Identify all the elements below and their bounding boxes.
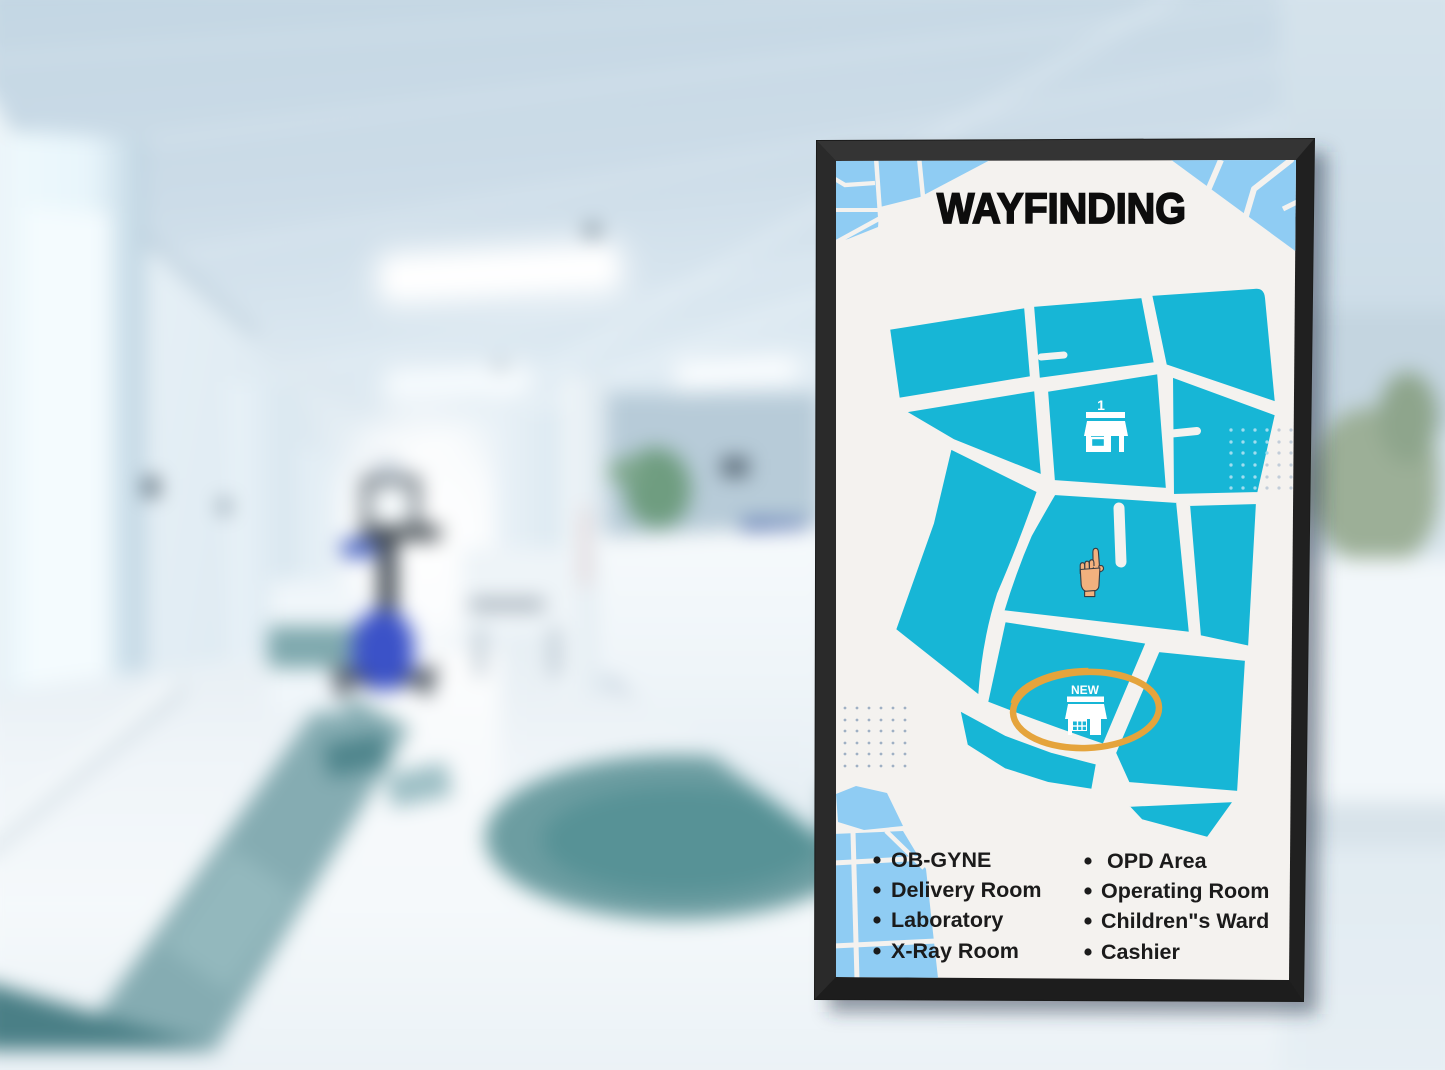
svg-text:Children"s Ward: Children"s Ward xyxy=(1101,909,1269,933)
svg-text:Cashier: Cashier xyxy=(1101,940,1181,964)
svg-text:X-Ray Room: X-Ray Room xyxy=(891,939,1019,963)
svg-text:Laboratory: Laboratory xyxy=(891,908,1003,932)
svg-text:OB-GYNE: OB-GYNE xyxy=(891,848,991,872)
svg-text:Delivery Room: Delivery Room xyxy=(891,878,1042,902)
svg-text:1: 1 xyxy=(1097,397,1105,413)
svg-text:Operating Room: Operating Room xyxy=(1101,879,1269,903)
svg-text:OPD Area: OPD Area xyxy=(1107,849,1208,873)
svg-text:NEW: NEW xyxy=(1071,683,1100,697)
svg-text:WAYFINDING: WAYFINDING xyxy=(937,184,1186,232)
